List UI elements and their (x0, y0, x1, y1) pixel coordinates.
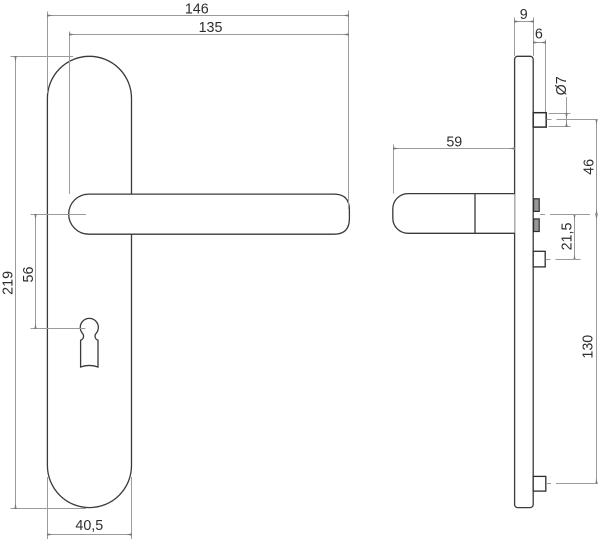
svg-text:46: 46 (581, 159, 597, 175)
svg-text:21,5: 21,5 (559, 223, 575, 251)
svg-text:56: 56 (21, 267, 37, 283)
svg-text:130: 130 (581, 335, 597, 359)
svg-text:40,5: 40,5 (75, 518, 103, 534)
svg-text:146: 146 (185, 1, 209, 17)
svg-text:219: 219 (1, 271, 17, 295)
svg-text:Ø7: Ø7 (554, 76, 570, 95)
svg-text:59: 59 (446, 134, 462, 150)
svg-text:9: 9 (520, 7, 528, 23)
svg-text:6: 6 (535, 27, 543, 43)
svg-text:135: 135 (199, 20, 223, 36)
